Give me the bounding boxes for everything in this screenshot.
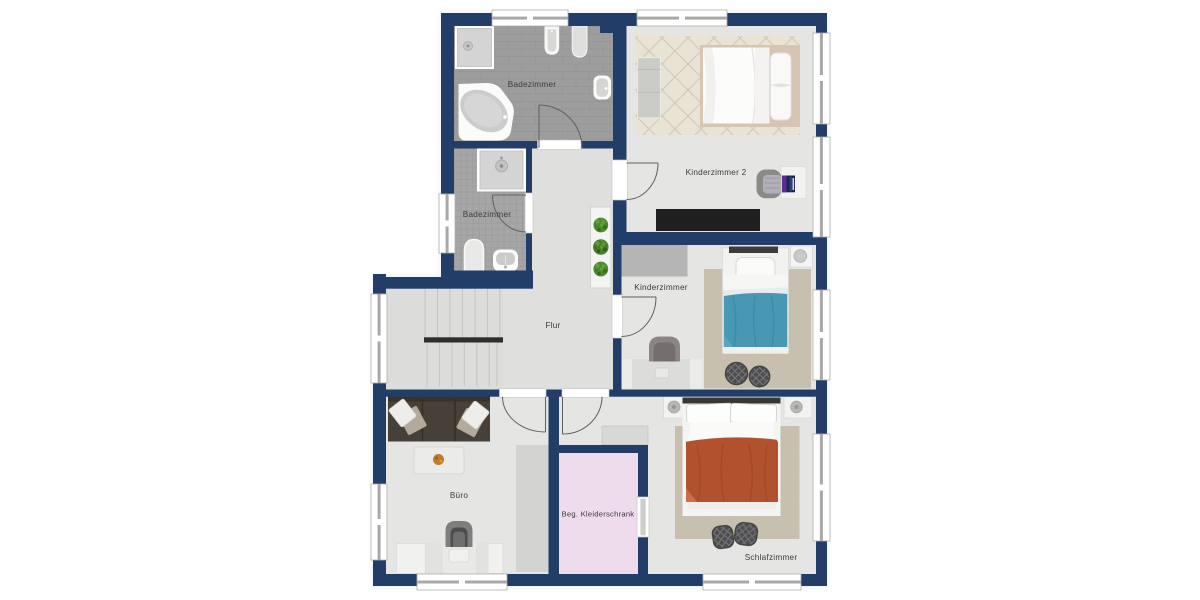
svg-text:Kinderzimmer 2: Kinderzimmer 2: [686, 168, 747, 177]
svg-text:Schlafzimmer: Schlafzimmer: [745, 553, 798, 562]
svg-text:Kinderzimmer: Kinderzimmer: [634, 283, 688, 292]
svg-text:Büro: Büro: [450, 491, 468, 500]
svg-text:Badezimmer: Badezimmer: [463, 210, 511, 219]
svg-text:Badezimmer: Badezimmer: [508, 80, 556, 89]
svg-text:Flur: Flur: [545, 321, 560, 330]
svg-text:Beg. Kleiderschrank: Beg. Kleiderschrank: [562, 510, 635, 519]
